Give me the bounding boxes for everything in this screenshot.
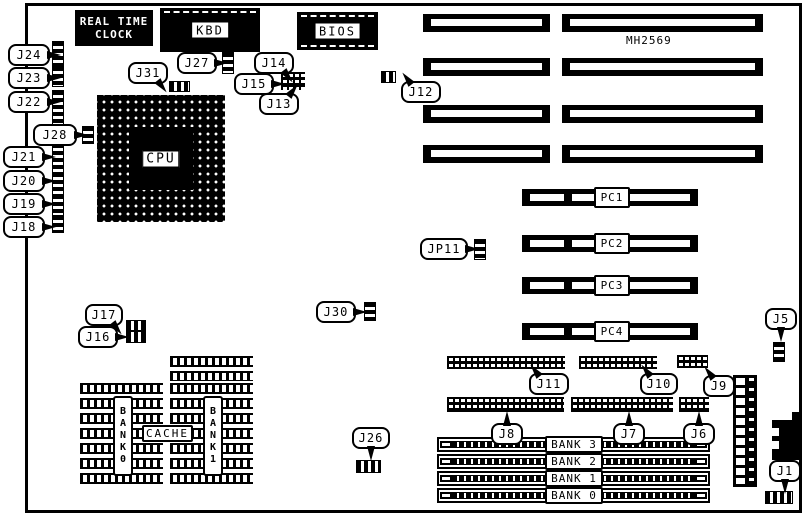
callout-jp11: JP11	[420, 238, 468, 260]
pci-slot-key	[572, 328, 594, 335]
isa-slot-key	[570, 63, 755, 70]
simm-bank-label-3: BANK 3	[545, 436, 603, 453]
cache-bank1-label: BANK1	[203, 396, 223, 476]
callout-pointer	[777, 327, 785, 342]
power-connector-pins	[736, 378, 745, 484]
rtc-label-line1: REAL TIME	[80, 15, 149, 28]
callout-j28: J28	[33, 124, 77, 146]
tag-ram-chips	[170, 356, 253, 381]
callout-pointer	[42, 177, 56, 185]
callout-j17: J17	[85, 304, 123, 326]
pci-slot-key	[530, 194, 564, 201]
callout-j9: J9	[703, 375, 735, 397]
pci-slot-label: PC1	[594, 187, 630, 208]
board-part-number: MH2569	[626, 34, 672, 47]
chip-dashed-edge	[164, 11, 256, 13]
connector-j16	[126, 331, 146, 343]
callout-pointer	[74, 131, 88, 139]
power-connector	[733, 375, 757, 487]
motherboard-diagram: REAL TIME CLOCK KBD BIOS CPU MH2569 TAG …	[0, 0, 806, 520]
callout-pointer	[625, 411, 633, 426]
callout-j7: J7	[613, 423, 645, 445]
pci-slot-pc2: PC2	[522, 235, 698, 252]
pci-slot-key	[530, 282, 564, 289]
callout-pointer	[695, 411, 703, 426]
keyboard-din-port	[792, 412, 802, 422]
callout-j31: J31	[128, 62, 168, 84]
isa-slot-key	[431, 150, 542, 157]
simm-clip	[695, 458, 707, 465]
callout-j15: J15	[234, 73, 274, 95]
isa-slot-key	[431, 19, 542, 26]
callout-pointer	[353, 308, 367, 316]
callout-pointer	[781, 479, 789, 494]
callout-pointer	[271, 80, 285, 88]
isa-slot-1-long	[562, 14, 763, 32]
callout-pointer	[42, 153, 56, 161]
callout-j18: J18	[3, 216, 45, 238]
connector-j31	[169, 81, 190, 92]
pci-slot-key	[530, 240, 564, 247]
isa-slot-key	[431, 110, 542, 117]
pci-slot-label: PC4	[594, 321, 630, 342]
pci-slot-label: PC3	[594, 275, 630, 296]
callout-j16: J16	[78, 326, 118, 348]
pci-slot-key	[530, 328, 564, 335]
callout-pointer	[115, 333, 129, 341]
callout-pointer	[47, 98, 61, 106]
isa-slot-key	[570, 19, 755, 26]
chip-dashed-edge	[301, 15, 374, 17]
callout-pointer	[465, 245, 479, 253]
connector-j22	[52, 90, 64, 125]
pci-slot-key	[572, 240, 594, 247]
simm-clip	[440, 475, 452, 482]
callout-j13: J13	[259, 93, 299, 115]
pci-slot-key	[572, 282, 594, 289]
callout-j26: J26	[352, 427, 390, 449]
callout-j19: J19	[3, 193, 45, 215]
callout-j12: J12	[401, 81, 441, 103]
simm-clip	[440, 441, 452, 448]
pci-slot-pc3: PC3	[522, 277, 698, 294]
pci-slot-pc4: PC4	[522, 323, 698, 340]
connector-j26	[356, 460, 381, 473]
callout-pointer	[47, 74, 61, 82]
cache-label: CACHE	[142, 425, 193, 442]
real-time-clock-chip: REAL TIME CLOCK	[75, 10, 153, 46]
callout-pointer	[503, 411, 511, 426]
simm-clip	[440, 458, 452, 465]
pci-slot-pc1: PC1	[522, 189, 698, 206]
din-notch	[772, 441, 779, 449]
pci-slot-key	[630, 194, 690, 201]
simm-bank-label-1: BANK 1	[545, 470, 603, 487]
callout-j30: J30	[316, 301, 356, 323]
connector-j12	[381, 71, 396, 83]
connector-j7	[571, 397, 673, 412]
kbd-label: KBD	[190, 21, 230, 40]
callout-pointer	[367, 446, 375, 461]
rtc-label-line2: CLOCK	[95, 28, 133, 41]
cpu-socket: CPU	[97, 95, 225, 222]
din-notch	[772, 428, 779, 436]
callout-j24: J24	[8, 44, 50, 66]
power-connector-pins	[749, 378, 754, 484]
bios-label: BIOS	[313, 22, 362, 41]
callout-j14: J14	[254, 52, 294, 74]
connector-j5	[773, 342, 785, 362]
callout-j22: J22	[8, 91, 50, 113]
simm-clip	[695, 492, 707, 499]
isa-slot-3-long	[562, 105, 763, 123]
isa-slot-key	[431, 63, 542, 70]
simm-clip	[440, 492, 452, 499]
callout-pointer	[42, 223, 56, 231]
callout-j23: J23	[8, 67, 50, 89]
connector-j17	[126, 320, 146, 331]
bios-chip: BIOS	[297, 12, 378, 50]
callout-j6: J6	[683, 423, 715, 445]
callout-j5: J5	[765, 308, 797, 330]
isa-slot-2-short	[423, 58, 550, 76]
isa-slot-key	[570, 110, 755, 117]
connector-j6	[679, 397, 709, 412]
callout-pointer	[47, 51, 61, 59]
isa-slot-1-short	[423, 14, 550, 32]
pci-slot-key	[630, 240, 690, 247]
cache-bank0-label: BANK0	[113, 396, 133, 476]
callout-pointer	[214, 59, 228, 67]
simm-bank-label-0: BANK 0	[545, 487, 603, 504]
simm-clip	[695, 475, 707, 482]
pci-slot-label: PC2	[594, 233, 630, 254]
chip-dashed-edge	[301, 45, 374, 47]
isa-slot-key	[570, 150, 755, 157]
cpu-label: CPU	[142, 150, 179, 167]
callout-pointer	[42, 200, 56, 208]
callout-j27: J27	[177, 52, 217, 74]
pci-slot-key	[572, 194, 594, 201]
keyboard-din-port	[772, 420, 802, 460]
isa-slot-3-short	[423, 105, 550, 123]
keyboard-controller-chip: KBD	[160, 8, 260, 52]
simm-bank-label-2: BANK 2	[545, 453, 603, 470]
pci-slot-key	[630, 282, 690, 289]
connector-j8	[447, 397, 564, 412]
callout-j1: J1	[769, 460, 801, 482]
callout-j8: J8	[491, 423, 523, 445]
isa-slot-4-short	[423, 145, 550, 163]
callout-j10: J10	[640, 373, 678, 395]
isa-slot-2-long	[562, 58, 763, 76]
isa-slot-4-long	[562, 145, 763, 163]
callout-j20: J20	[3, 170, 45, 192]
connector-j11	[447, 356, 565, 369]
callout-j21: J21	[3, 146, 45, 168]
callout-j11: J11	[529, 373, 569, 395]
pci-slot-key	[630, 328, 690, 335]
